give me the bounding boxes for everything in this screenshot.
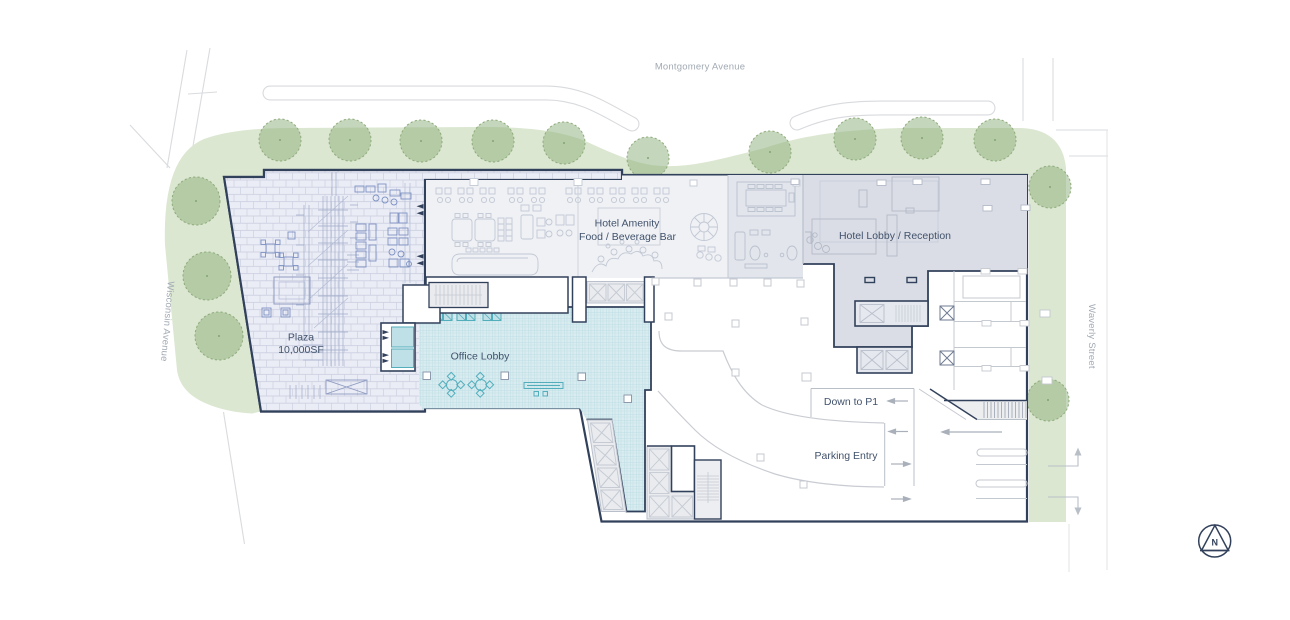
svg-text:Office Lobby: Office Lobby — [451, 351, 511, 363]
svg-text:Down to P1: Down to P1 — [824, 396, 878, 408]
svg-text:N: N — [1211, 538, 1218, 548]
svg-text:10,000SF: 10,000SF — [278, 344, 324, 356]
svg-text:Hotel Amenity: Hotel Amenity — [595, 218, 661, 230]
svg-text:Waverly Street: Waverly Street — [1086, 304, 1097, 369]
svg-text:Parking Entry: Parking Entry — [814, 450, 878, 462]
svg-text:Food / Beverage Bar: Food / Beverage Bar — [579, 231, 676, 243]
svg-text:Plaza: Plaza — [288, 332, 314, 344]
svg-text:Hotel Lobby / Reception: Hotel Lobby / Reception — [839, 230, 951, 242]
svg-text:Montgomery Avenue: Montgomery Avenue — [655, 62, 745, 73]
